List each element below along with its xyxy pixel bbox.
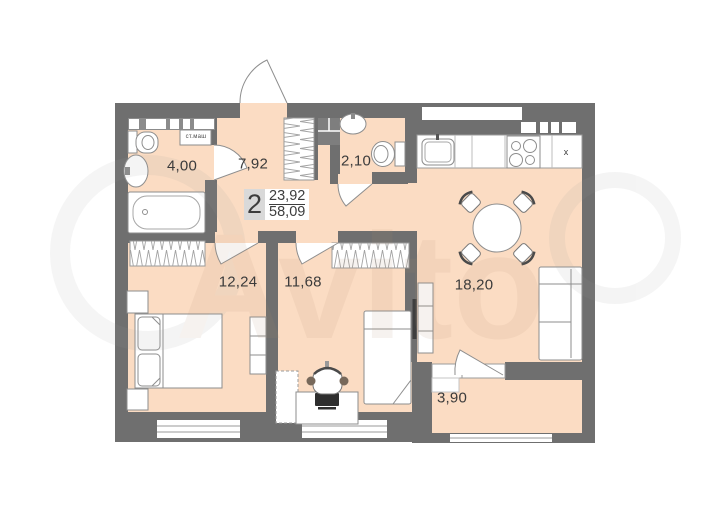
plan-canvas: Avito [0, 0, 720, 509]
rooms-count: 2 [244, 189, 265, 220]
room-area-bedroom: 12,24 [219, 274, 258, 291]
floor-plan: Avito 4,00 7,92 2,10 12,24 11,68 18,20 3… [0, 0, 720, 509]
area-fraction: 23,92 58,09 [265, 189, 309, 220]
planned-wardrobe [276, 371, 298, 423]
washing-machine-label: ст.маш [186, 134, 207, 140]
bathroom-toilet [128, 131, 158, 153]
living-area: 23,92 [269, 189, 305, 205]
hallway-closet [284, 118, 314, 180]
stove [507, 136, 540, 168]
room-area-hallway: 7,92 [238, 156, 268, 173]
room-area-kitchen-living: 18,20 [455, 277, 494, 294]
room-area-kids-room: 11,68 [284, 274, 321, 291]
apartment-summary: 2 23,92 58,09 [244, 189, 309, 220]
wc-toilet [372, 142, 406, 167]
total-area: 58,09 [269, 205, 305, 220]
nightstand [127, 389, 148, 410]
room-area-balcony: 3,90 [437, 390, 467, 407]
vent-mark-label: x [564, 147, 569, 157]
nightstand [127, 291, 148, 313]
room-area-wc: 2,10 [341, 153, 371, 170]
bathroom-shelves [128, 118, 215, 130]
entrance-opening [240, 103, 287, 118]
kitchen-sink [422, 134, 454, 165]
entrance-door [240, 60, 287, 103]
vent-boxes [318, 118, 340, 145]
room-area-bathroom: 4,00 [167, 158, 197, 175]
laptop [315, 393, 339, 410]
